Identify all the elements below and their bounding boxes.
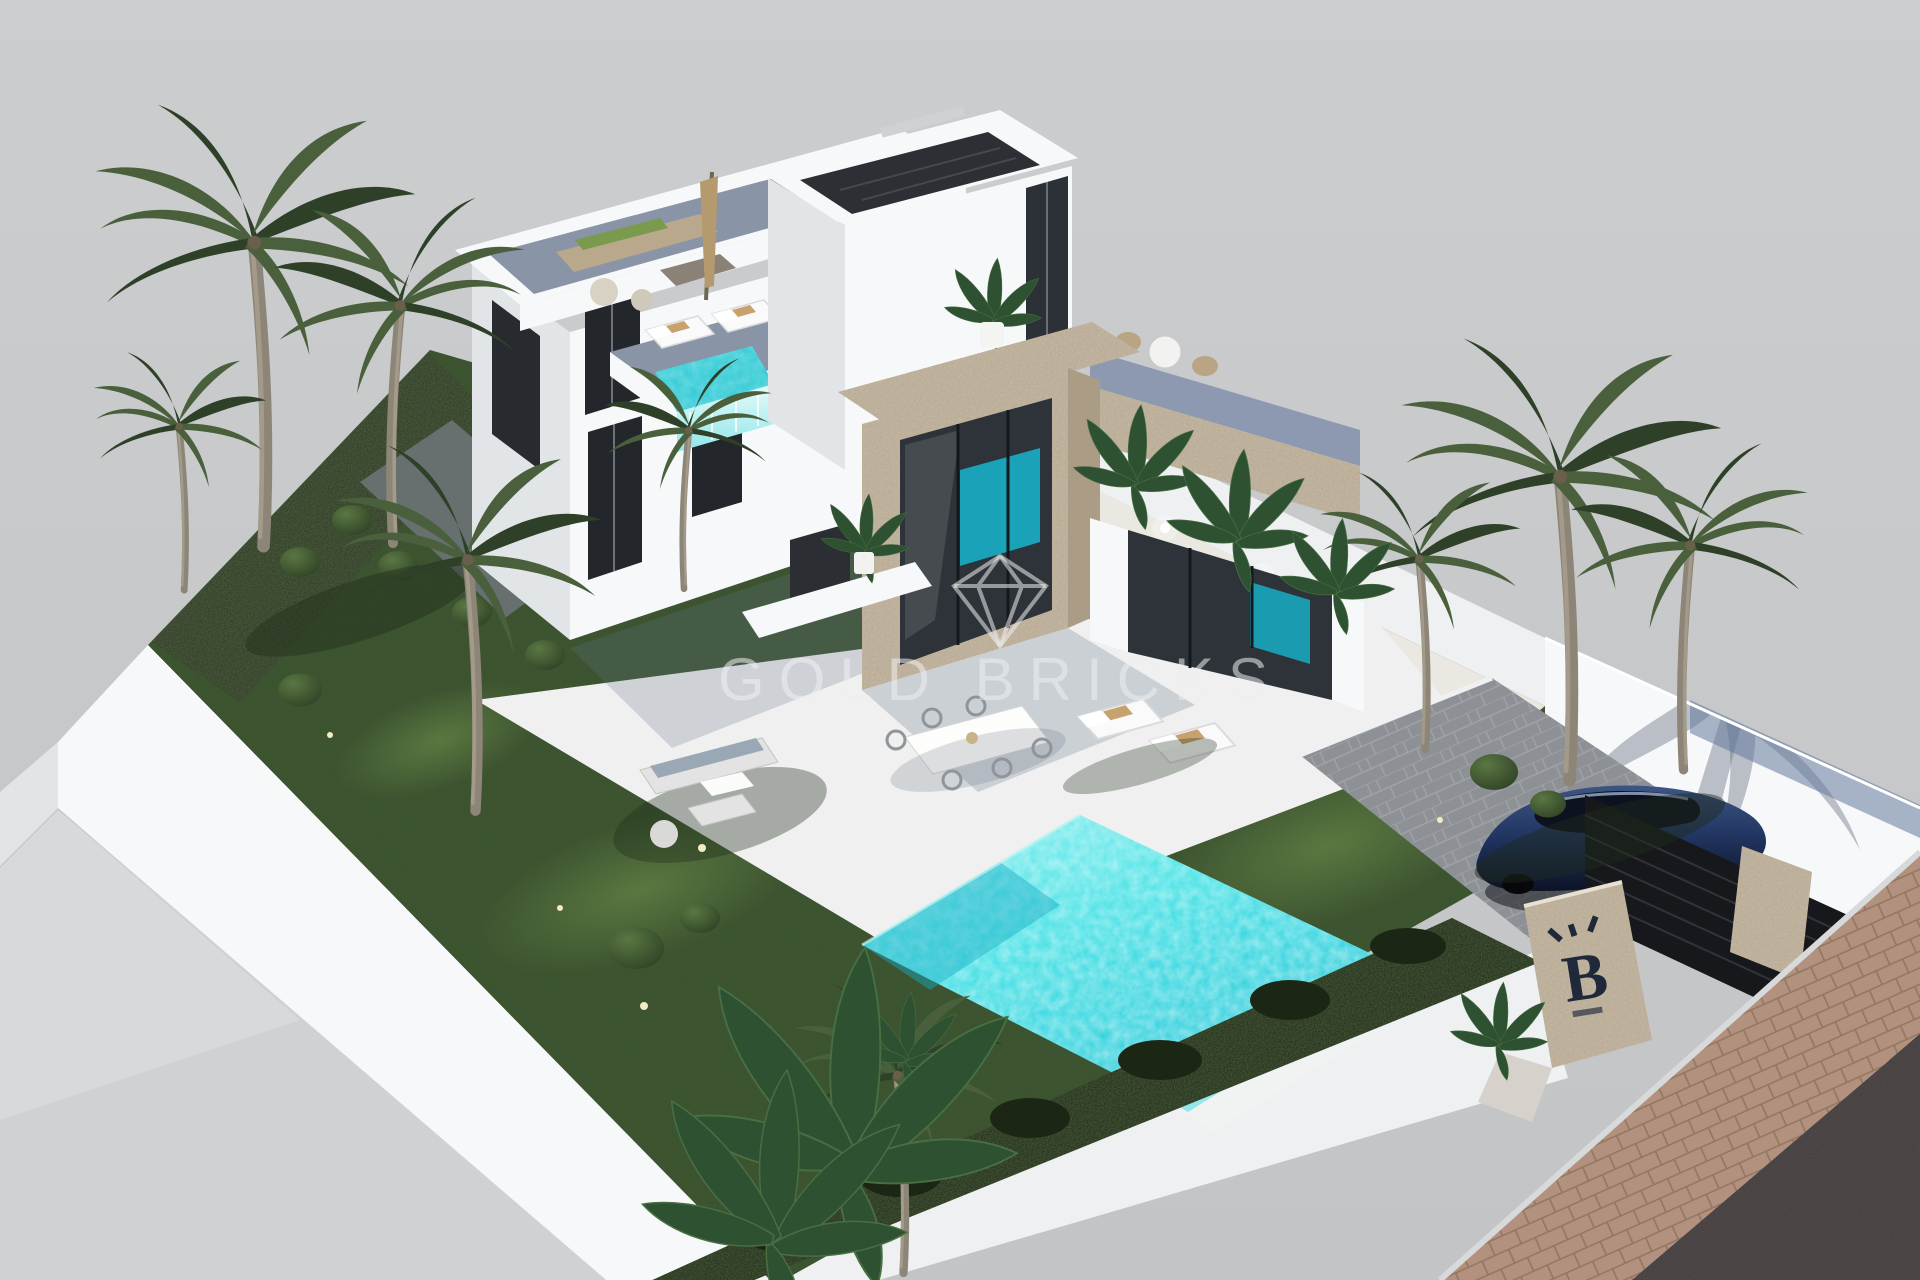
- wicker-chair: [1192, 356, 1218, 376]
- watermark-text: GOLD BRICKS: [718, 646, 1282, 713]
- centerpiece: [966, 732, 978, 744]
- scene: B: [0, 0, 1920, 1280]
- round-table: [1149, 336, 1181, 368]
- render-canvas: B: [0, 0, 1920, 1280]
- pouf: [650, 820, 678, 848]
